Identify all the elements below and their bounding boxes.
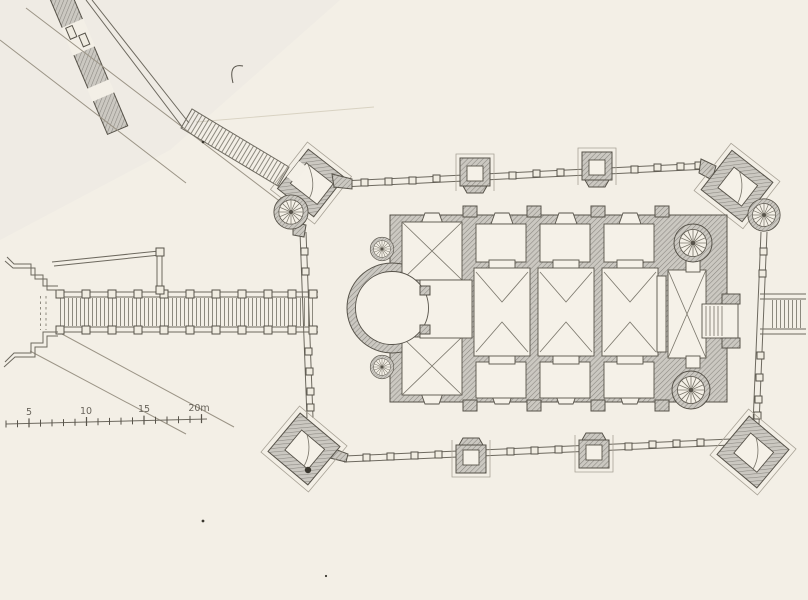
stair-turret-sw [370, 355, 394, 379]
church [347, 206, 740, 411]
aisle-bays-south [476, 354, 654, 398]
scale-label-15: 15 [138, 404, 150, 415]
stair-turret-nw [370, 237, 394, 261]
nave-bays [474, 268, 658, 356]
bridge-west [56, 290, 318, 334]
scale-label-20m: 20m [188, 403, 209, 414]
tower-room-northwest [402, 222, 462, 280]
spiral-stair-southeast [672, 371, 710, 409]
scanned-plan-page: 5 10 15 20m [0, 0, 808, 600]
plan-canvas: 5 10 15 20m [0, 0, 808, 600]
spiral-stair-northeast [674, 224, 712, 262]
scale-label-10: 10 [80, 406, 92, 417]
spiral-stair-northeast-gate [748, 199, 780, 231]
aisle-bays-north [476, 224, 654, 270]
spiral-stair-gatehouse [274, 195, 308, 229]
tower-room-southwest [402, 337, 462, 395]
chancel-bay [657, 260, 706, 368]
scale-label-5: 5 [26, 407, 32, 418]
